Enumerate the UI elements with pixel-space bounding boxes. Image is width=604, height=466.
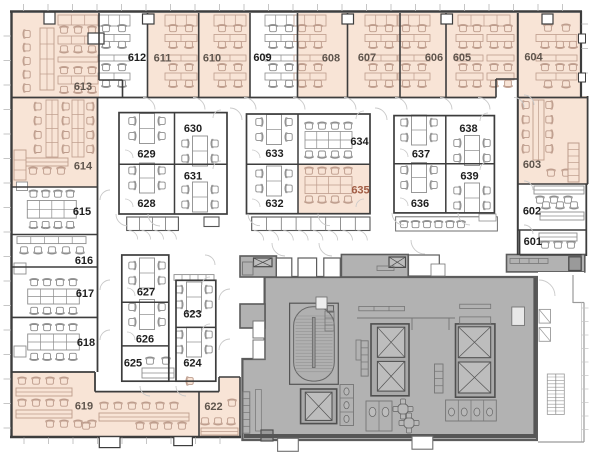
svg-text:633: 633 bbox=[265, 148, 283, 160]
svg-text:626: 626 bbox=[136, 333, 154, 345]
svg-text:611: 611 bbox=[154, 52, 172, 64]
svg-text:634: 634 bbox=[350, 136, 369, 148]
svg-text:618: 618 bbox=[77, 337, 95, 349]
svg-text:613: 613 bbox=[74, 81, 92, 93]
svg-text:605: 605 bbox=[453, 52, 471, 64]
svg-text:608: 608 bbox=[322, 52, 340, 64]
svg-text:601: 601 bbox=[524, 236, 542, 248]
svg-text:630: 630 bbox=[184, 123, 202, 135]
svg-text:614: 614 bbox=[74, 160, 93, 172]
svg-text:636: 636 bbox=[411, 198, 429, 210]
svg-text:604: 604 bbox=[524, 51, 543, 63]
svg-text:631: 631 bbox=[184, 170, 202, 182]
svg-text:629: 629 bbox=[137, 148, 155, 160]
svg-text:635: 635 bbox=[351, 184, 369, 196]
svg-text:612: 612 bbox=[128, 52, 146, 64]
svg-text:602: 602 bbox=[523, 205, 541, 217]
svg-text:622: 622 bbox=[204, 401, 222, 413]
svg-text:607: 607 bbox=[358, 52, 376, 64]
svg-text:632: 632 bbox=[265, 198, 283, 210]
svg-text:617: 617 bbox=[76, 288, 94, 300]
svg-text:616: 616 bbox=[75, 255, 93, 267]
svg-text:638: 638 bbox=[459, 123, 477, 135]
svg-text:624: 624 bbox=[183, 357, 202, 369]
svg-text:606: 606 bbox=[425, 52, 443, 64]
svg-text:619: 619 bbox=[75, 400, 93, 412]
svg-text:628: 628 bbox=[137, 198, 155, 210]
svg-text:639: 639 bbox=[460, 170, 478, 182]
svg-text:615: 615 bbox=[73, 206, 91, 218]
svg-text:627: 627 bbox=[137, 286, 155, 298]
svg-text:623: 623 bbox=[183, 308, 201, 320]
svg-text:603: 603 bbox=[523, 159, 541, 171]
svg-text:610: 610 bbox=[203, 52, 221, 64]
svg-text:637: 637 bbox=[412, 148, 430, 160]
svg-text:609: 609 bbox=[253, 52, 271, 64]
svg-text:625: 625 bbox=[124, 357, 142, 369]
